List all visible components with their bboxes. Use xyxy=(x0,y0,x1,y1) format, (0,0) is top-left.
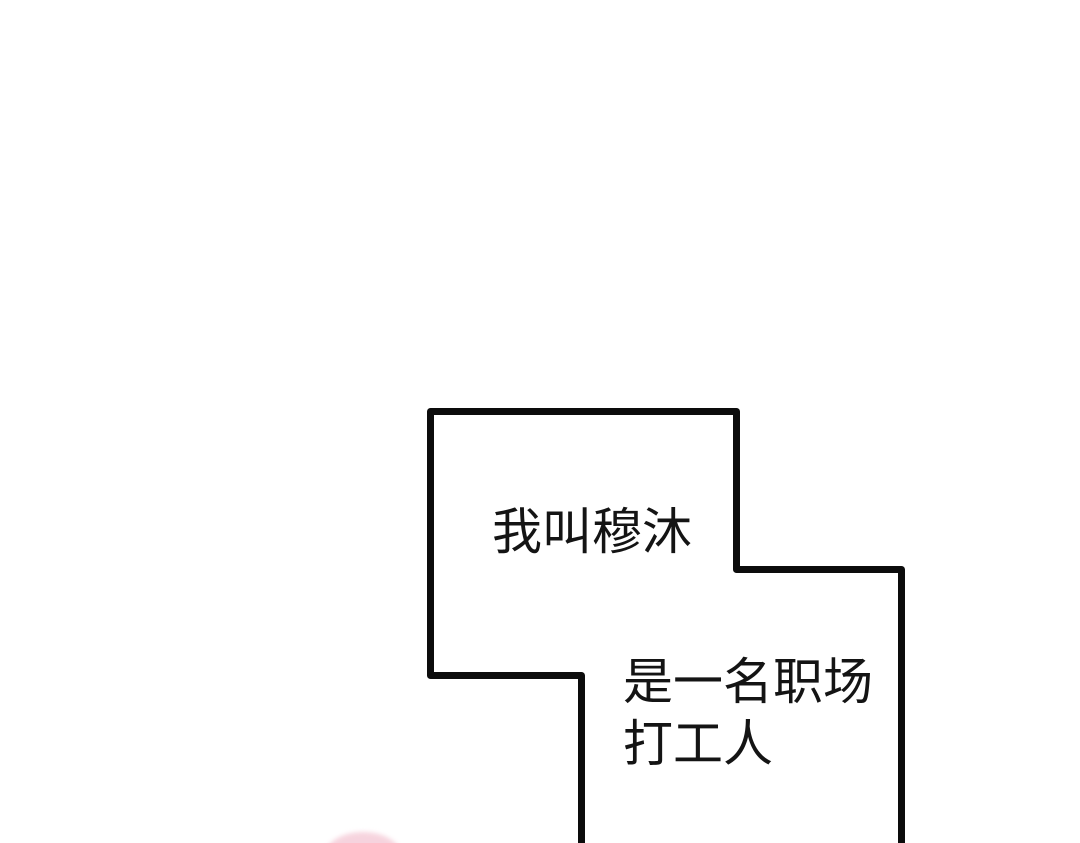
caption-name-intro: 我叫穆沐 xyxy=(492,501,692,563)
panel-border-path xyxy=(431,412,902,843)
panel-artwork xyxy=(0,0,1080,843)
pink-blob-shape xyxy=(324,832,402,843)
caption-job-line1: 是一名职场 xyxy=(623,654,873,710)
caption-job: 是一名职场打工人 xyxy=(623,651,873,775)
comic-page: 我叫穆沐 是一名职场打工人 xyxy=(0,0,1080,843)
caption-job-line2: 打工人 xyxy=(623,716,773,772)
